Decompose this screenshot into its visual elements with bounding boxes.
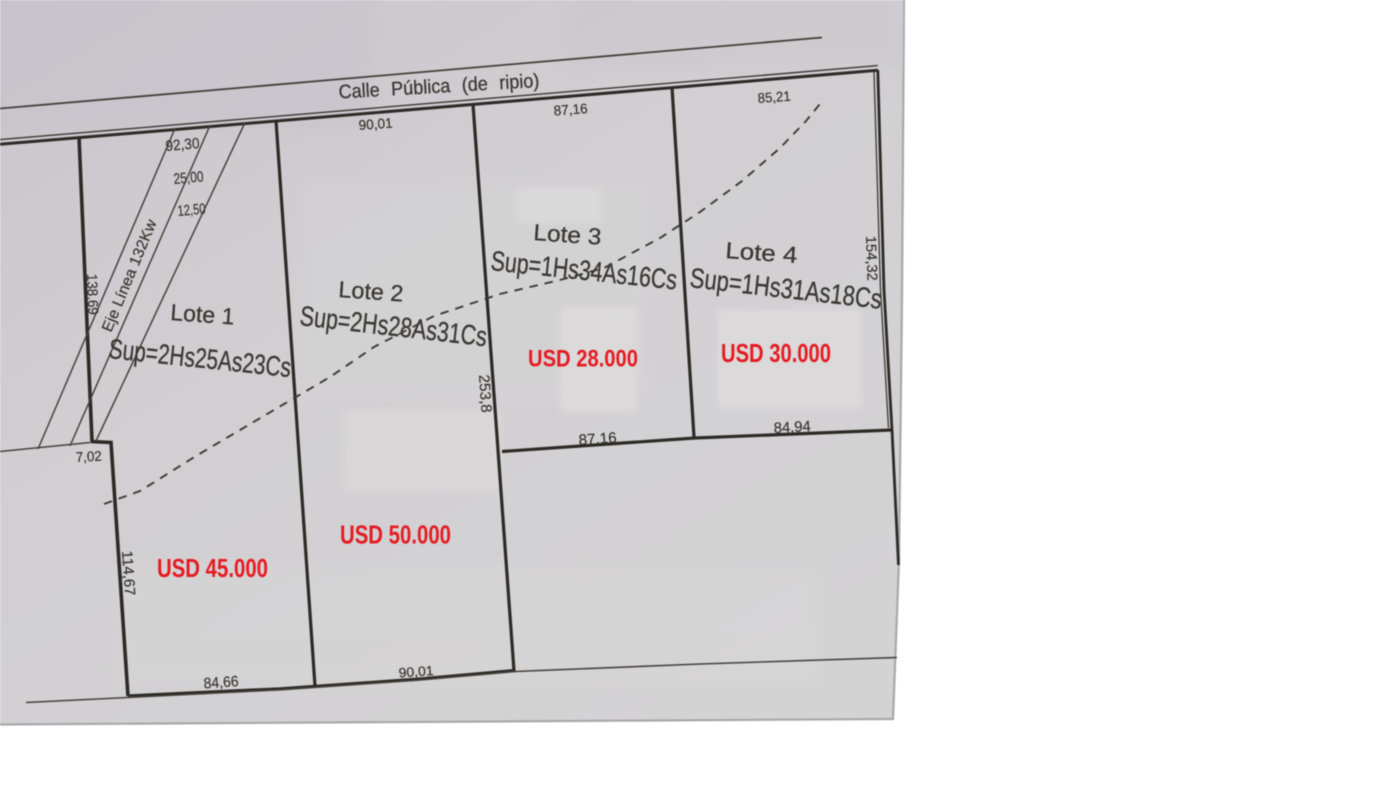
svg-text:USD 45.000: USD 45.000 [157, 555, 268, 583]
svg-text:84,66: 84,66 [203, 673, 239, 692]
svg-text:85,21: 85,21 [757, 88, 791, 106]
svg-text:253,8: 253,8 [475, 374, 495, 413]
svg-text:92,30: 92,30 [165, 135, 200, 155]
svg-text:154,32: 154,32 [862, 236, 880, 282]
svg-text:7,02: 7,02 [75, 448, 102, 465]
svg-text:Lote 2: Lote 2 [338, 276, 405, 306]
svg-text:12,50: 12,50 [177, 201, 206, 220]
svg-text:87,16: 87,16 [578, 429, 617, 449]
svg-text:138,69: 138,69 [83, 274, 100, 316]
svg-text:USD 30.000: USD 30.000 [721, 340, 831, 368]
svg-text:USD 28.000: USD 28.000 [528, 346, 638, 373]
svg-text:USD 50.000: USD 50.000 [340, 522, 451, 550]
svg-text:84,94: 84,94 [773, 418, 811, 437]
svg-text:87,16: 87,16 [553, 100, 588, 118]
svg-text:114,67: 114,67 [118, 550, 138, 596]
svg-text:25,00: 25,00 [173, 168, 204, 188]
svg-text:90,01: 90,01 [358, 115, 393, 133]
svg-text:Lote 4: Lote 4 [725, 237, 799, 268]
svg-text:Lote 1: Lote 1 [170, 299, 236, 329]
svg-text:Lote 3: Lote 3 [533, 219, 603, 250]
svg-text:90,01: 90,01 [398, 663, 434, 680]
